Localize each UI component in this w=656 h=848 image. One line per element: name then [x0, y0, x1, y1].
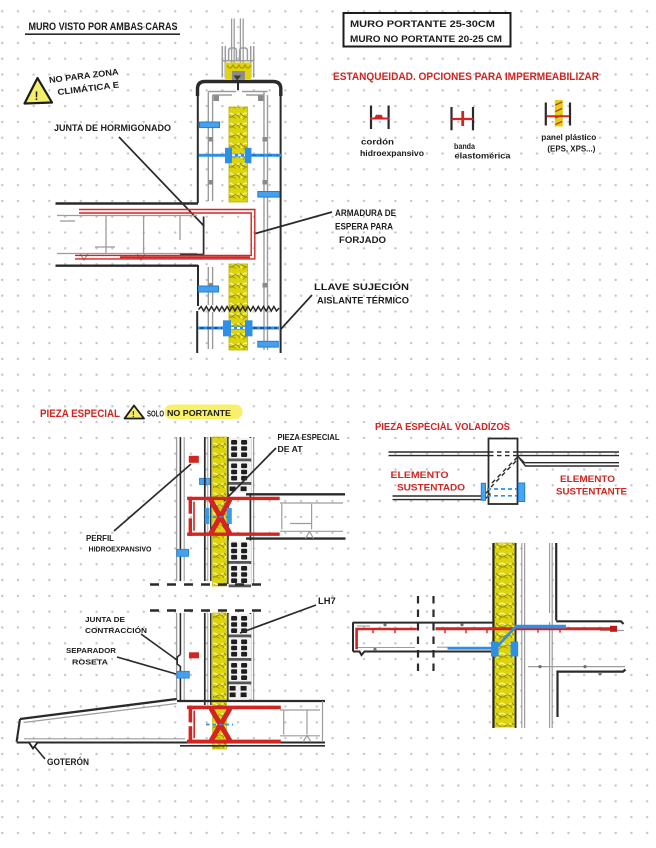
svg-text:PERFIL: PERFIL — [86, 534, 114, 543]
svg-text:ESTANQUEIDAD. OPCIONES PARA IM: ESTANQUEIDAD. OPCIONES PARA IMPERMEABILI… — [333, 71, 599, 83]
svg-text:FORJADO: FORJADO — [339, 235, 386, 245]
svg-text:SOLO: SOLO — [147, 409, 164, 419]
svg-text:panel plástico: panel plástico — [541, 133, 596, 142]
svg-text:!: ! — [132, 410, 135, 419]
svg-text:ARMADURA DE: ARMADURA DE — [335, 208, 396, 218]
svg-text:ELEMENTO: ELEMENTO — [391, 469, 449, 480]
svg-text:banda: banda — [454, 142, 475, 151]
svg-text:cordón: cordón — [361, 138, 394, 147]
svg-text:PIEZA ESPECIAL VOLADIZOS: PIEZA ESPECIAL VOLADIZOS — [375, 422, 510, 433]
svg-text:MURO VISTO POR AMBAS CARAS: MURO VISTO POR AMBAS CARAS — [29, 21, 178, 33]
svg-text:!: ! — [35, 89, 39, 103]
svg-text:LH7: LH7 — [318, 595, 336, 606]
svg-text:GOTERÓN: GOTERÓN — [47, 756, 89, 767]
svg-text:NO PORTANTE: NO PORTANTE — [167, 408, 231, 418]
svg-text:MURO PORTANTE 25-30CM: MURO PORTANTE 25-30CM — [350, 19, 495, 29]
svg-text:SUSTENTADO: SUSTENTADO — [397, 482, 465, 493]
svg-text:elastomérica: elastomérica — [455, 152, 511, 161]
svg-text:JUNTA DE HORMIGONADO: JUNTA DE HORMIGONADO — [54, 123, 171, 133]
svg-text:ROSETA: ROSETA — [72, 658, 109, 667]
svg-text:CONTRACCIÓN: CONTRACCIÓN — [85, 626, 147, 635]
svg-text:JUNTA DE: JUNTA DE — [85, 615, 125, 624]
svg-text:hidroexpansivo: hidroexpansivo — [360, 149, 424, 158]
svg-text:DE AT: DE AT — [278, 445, 303, 454]
svg-text:PIEZA ESPECIAL: PIEZA ESPECIAL — [40, 408, 120, 420]
svg-text:PIEZA ESPECIAL: PIEZA ESPECIAL — [278, 433, 340, 442]
svg-text:(EPS, XPS...): (EPS, XPS...) — [547, 145, 595, 154]
svg-text:SUSTENTANTE: SUSTENTANTE — [556, 486, 627, 497]
svg-text:HIDROEXPANSIVO: HIDROEXPANSIVO — [89, 545, 152, 554]
svg-text:AISLANTE TÉRMICO: AISLANTE TÉRMICO — [317, 296, 409, 306]
svg-text:MURO NO PORTANTE 20-25 CM: MURO NO PORTANTE 20-25 CM — [350, 34, 502, 44]
svg-text:ELEMENTO: ELEMENTO — [560, 473, 615, 484]
svg-text:ESPERA PARA: ESPERA PARA — [335, 222, 393, 232]
svg-text:SEPARADOR: SEPARADOR — [66, 646, 117, 655]
svg-text:LLAVE SUJECIÓN: LLAVE SUJECIÓN — [314, 281, 409, 292]
